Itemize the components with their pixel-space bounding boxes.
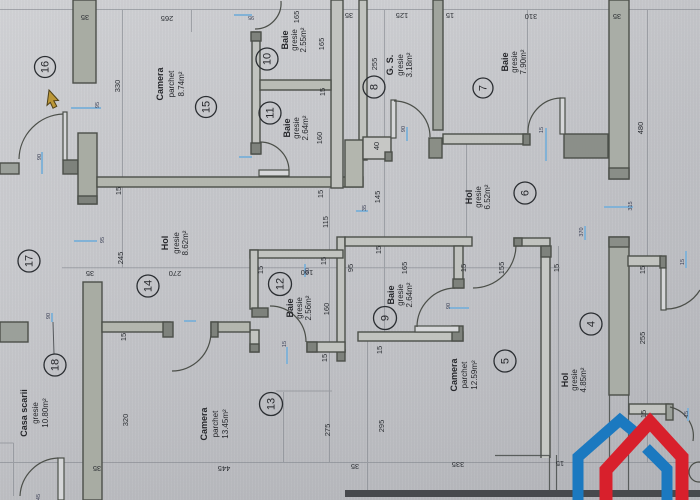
svg-text:Hol: Hol <box>160 236 170 251</box>
svg-text:Baie: Baie <box>282 118 292 137</box>
svg-text:270: 270 <box>169 269 182 278</box>
svg-text:295: 295 <box>377 420 386 433</box>
svg-text:17: 17 <box>24 255 36 267</box>
svg-text:6: 6 <box>520 190 532 196</box>
svg-text:15: 15 <box>114 187 123 195</box>
svg-text:40: 40 <box>372 142 381 150</box>
svg-text:4.85m²: 4.85m² <box>579 367 588 392</box>
svg-text:gresie: gresie <box>292 117 301 139</box>
svg-text:9: 9 <box>380 315 392 321</box>
svg-text:8.74m²: 8.74m² <box>177 71 186 96</box>
svg-text:15: 15 <box>282 341 288 347</box>
svg-text:Baie: Baie <box>285 298 295 317</box>
svg-text:15: 15 <box>556 459 564 468</box>
svg-text:gresie: gresie <box>570 369 579 391</box>
svg-text:2.64m²: 2.64m² <box>301 115 310 140</box>
svg-text:275: 275 <box>323 424 332 437</box>
svg-text:15: 15 <box>316 190 325 198</box>
svg-text:245: 245 <box>116 252 125 265</box>
svg-text:35: 35 <box>351 462 359 471</box>
svg-text:90: 90 <box>446 303 452 309</box>
svg-text:13: 13 <box>266 398 278 410</box>
svg-text:35: 35 <box>345 11 353 20</box>
svg-text:parchet: parchet <box>460 361 469 388</box>
svg-text:165: 165 <box>292 11 301 24</box>
svg-text:6.52m²: 6.52m² <box>483 184 492 209</box>
svg-text:7: 7 <box>478 85 490 91</box>
svg-text:35: 35 <box>362 205 368 211</box>
svg-text:gresie: gresie <box>396 54 405 76</box>
svg-text:155: 155 <box>497 262 506 275</box>
svg-text:7.90m²: 7.90m² <box>519 49 528 74</box>
svg-text:gresie: gresie <box>31 402 40 424</box>
svg-text:165: 165 <box>400 262 409 275</box>
svg-text:90: 90 <box>46 313 52 319</box>
svg-text:165: 165 <box>317 38 326 51</box>
svg-text:15: 15 <box>375 346 384 354</box>
svg-text:4: 4 <box>586 321 598 327</box>
svg-text:10.80m²: 10.80m² <box>41 398 50 428</box>
svg-text:Baie: Baie <box>386 285 396 304</box>
svg-text:95: 95 <box>248 14 254 20</box>
svg-text:gresie: gresie <box>510 51 519 73</box>
svg-text:15: 15 <box>552 264 561 272</box>
svg-text:15: 15 <box>446 11 454 20</box>
svg-text:15: 15 <box>256 266 265 274</box>
svg-text:8: 8 <box>369 84 381 90</box>
svg-text:15: 15 <box>680 259 686 265</box>
svg-text:15: 15 <box>638 266 647 274</box>
svg-text:480: 480 <box>636 122 645 135</box>
svg-text:gresie: gresie <box>295 297 304 319</box>
svg-text:315: 315 <box>628 201 634 210</box>
svg-text:90: 90 <box>401 126 407 132</box>
svg-text:445: 445 <box>218 464 231 473</box>
svg-text:160: 160 <box>322 303 331 316</box>
svg-text:Baie: Baie <box>280 30 290 49</box>
svg-text:16: 16 <box>40 61 52 73</box>
svg-text:320: 320 <box>121 414 130 427</box>
svg-text:Camera: Camera <box>449 358 459 392</box>
svg-text:95: 95 <box>346 264 355 272</box>
svg-text:Baie: Baie <box>500 52 510 71</box>
svg-text:15: 15 <box>320 354 329 362</box>
svg-text:90: 90 <box>37 154 43 160</box>
svg-text:330: 330 <box>113 80 122 93</box>
svg-text:parchet: parchet <box>211 410 220 437</box>
svg-text:2.56m²: 2.56m² <box>304 295 313 320</box>
svg-text:95: 95 <box>100 237 106 243</box>
svg-text:G. S.: G. S. <box>385 55 395 76</box>
svg-text:parchet: parchet <box>167 70 176 97</box>
svg-text:15: 15 <box>684 411 690 417</box>
svg-text:gresie: gresie <box>474 186 483 208</box>
svg-text:35: 35 <box>93 464 101 473</box>
svg-text:Hol: Hol <box>560 373 570 388</box>
svg-text:15: 15 <box>318 88 327 96</box>
svg-text:145: 145 <box>373 191 382 204</box>
svg-text:125: 125 <box>396 11 409 20</box>
svg-text:265: 265 <box>161 14 174 23</box>
svg-text:Hol: Hol <box>464 190 474 205</box>
svg-text:gresie: gresie <box>290 29 299 51</box>
svg-text:12: 12 <box>275 278 287 290</box>
svg-text:160: 160 <box>315 132 324 145</box>
svg-text:370: 370 <box>579 227 585 236</box>
svg-text:14: 14 <box>143 280 155 292</box>
svg-text:15: 15 <box>539 127 545 133</box>
svg-text:13.45m²: 13.45m² <box>221 409 230 439</box>
svg-text:335: 335 <box>452 460 465 469</box>
svg-text:2.55m²: 2.55m² <box>299 27 308 52</box>
svg-text:35: 35 <box>613 12 621 21</box>
svg-text:255: 255 <box>638 332 647 345</box>
svg-text:Camera: Camera <box>155 67 165 101</box>
svg-text:15: 15 <box>201 101 213 113</box>
svg-text:115: 115 <box>321 216 330 228</box>
svg-text:15: 15 <box>119 333 128 341</box>
svg-text:Casa scarii: Casa scarii <box>19 389 29 437</box>
svg-text:8.62m²: 8.62m² <box>181 230 190 255</box>
svg-text:3.18m²: 3.18m² <box>405 52 414 77</box>
svg-text:11: 11 <box>265 107 277 118</box>
svg-text:255: 255 <box>370 58 379 71</box>
svg-text:gresie: gresie <box>396 284 405 306</box>
svg-text:35: 35 <box>81 13 89 22</box>
svg-text:5: 5 <box>500 358 512 364</box>
svg-text:90: 90 <box>305 268 311 274</box>
svg-text:45: 45 <box>36 494 42 500</box>
svg-text:310: 310 <box>525 12 538 21</box>
svg-text:2.64m²: 2.64m² <box>405 282 414 307</box>
svg-text:15: 15 <box>374 246 383 254</box>
svg-text:gresie: gresie <box>172 232 181 254</box>
svg-text:12.59m²: 12.59m² <box>470 360 479 390</box>
svg-text:10: 10 <box>262 53 274 65</box>
svg-text:15: 15 <box>459 264 468 272</box>
svg-text:Camera: Camera <box>199 407 209 441</box>
svg-text:35: 35 <box>86 269 94 278</box>
svg-text:15: 15 <box>319 257 328 265</box>
svg-text:95: 95 <box>95 102 101 108</box>
svg-text:18: 18 <box>50 359 62 371</box>
